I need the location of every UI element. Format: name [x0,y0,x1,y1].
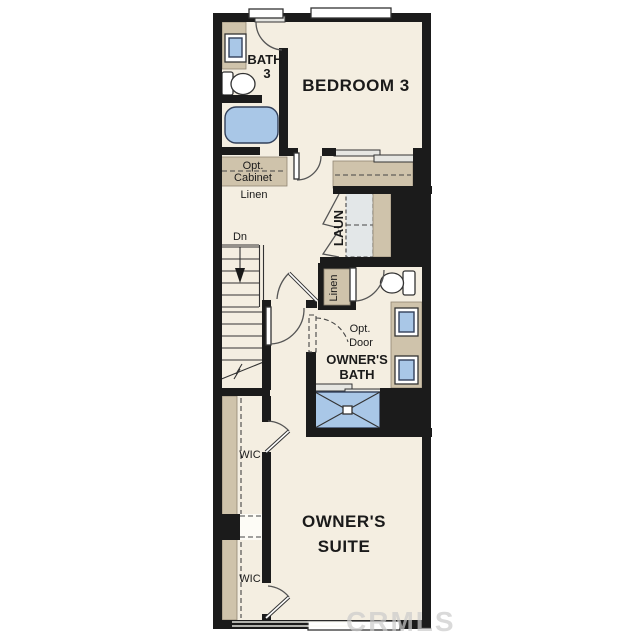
wic-lower-label: WIC [239,573,260,585]
bedroom3-door-leaf [294,153,299,179]
window-bath3 [249,9,283,18]
floorplan-canvas: BATH 3 BEDROOM 3 Opt. Cabinet Linen Dn L… [0,0,640,640]
wic-shelf-strip [222,396,237,620]
bedroom3-closet-slider-left [334,150,380,156]
bedroom3-closet [333,150,420,188]
laundry-counter [373,191,391,257]
suite-entry-door-leaf [266,307,271,345]
bath3-toilet-bowl [231,74,255,95]
opt-cabinet-label-line2: Cabinet [234,172,272,184]
bath3-label-line1: BATH [247,52,282,67]
bath3-sink-basin [229,38,242,57]
bath3-tub [225,107,278,143]
wall-exterior-left [213,13,222,629]
bedroom3-label: BEDROOM 3 [302,76,409,95]
wall-wic-a [262,396,271,422]
owners-suite-label-line2: SUITE [318,537,371,556]
wic-upper-label: WIC [239,449,260,461]
bath3-label-line2: 3 [263,66,270,81]
stairs-dn-label: Dn [233,231,247,243]
opt-door-label-line1: Opt. [350,323,371,335]
shower-drain [343,406,352,414]
owners-toilet-tank [403,271,415,295]
wall-bedroom3-south-right [322,148,336,156]
owners-bath-door-leaf [350,268,356,301]
owners-bath-label-line1: OWNER'S [326,352,388,367]
linen-hall-label: Linen [241,189,268,201]
opt-door-label-line2: Door [349,337,373,349]
linen-closet-label: Linen [328,275,340,302]
owners-suite-label-line1: OWNER'S [302,512,386,531]
owners-bath-label-line2: BATH [339,367,374,382]
wall-exterior-right [422,13,431,629]
laundry-label: LAUN [331,210,346,246]
owners-sink-1-basin [399,312,414,332]
owners-sink-2-basin [399,360,414,380]
wall-wic-b [262,452,271,583]
wic-builtin [240,514,263,540]
floorplan-svg: BATH 3 BEDROOM 3 Opt. Cabinet Linen Dn L… [0,0,640,640]
window-bedroom3 [311,8,391,18]
wall-owners-bath-bottom [306,428,432,437]
opt-cabinet-label-line1: Opt. [243,160,264,172]
watermark-text: CRMLS [346,606,456,637]
wall-bath-west-lower [306,352,316,437]
